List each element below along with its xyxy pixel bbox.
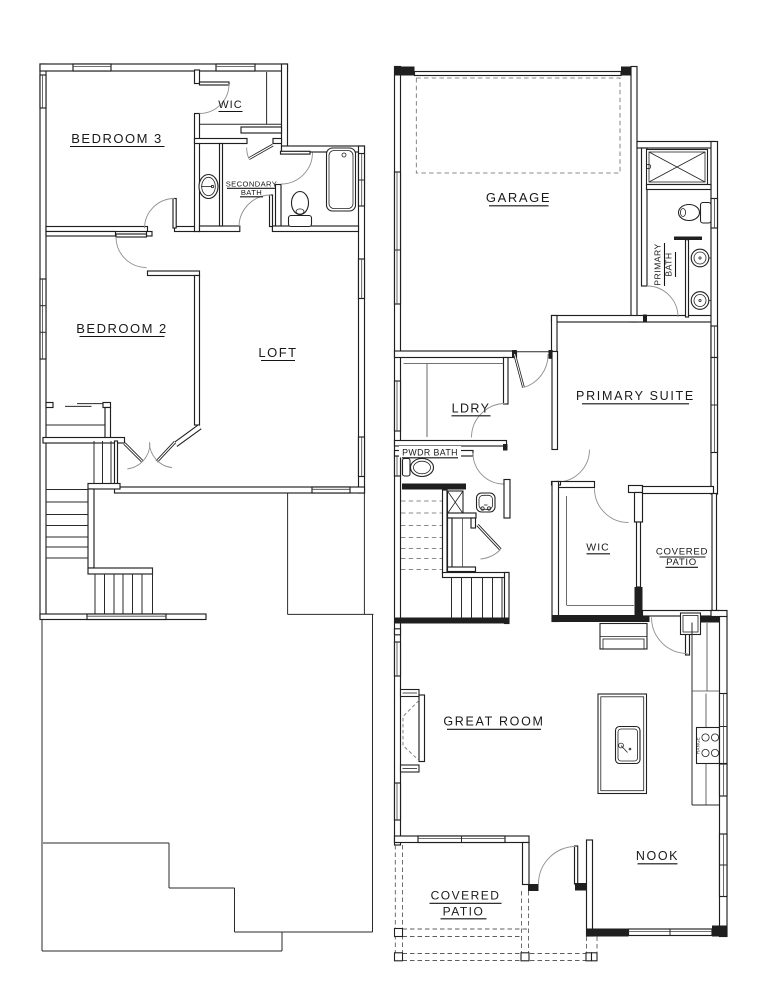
svg-text:BATH: BATH: [664, 252, 674, 276]
svg-text:NOOK: NOOK: [636, 849, 679, 863]
svg-text:WIC: WIC: [586, 542, 609, 554]
svg-text:PATIO: PATIO: [443, 905, 485, 919]
svg-text:BATH: BATH: [241, 188, 262, 197]
svg-text:PRIMARY: PRIMARY: [653, 243, 663, 286]
svg-text:LOFT: LOFT: [258, 345, 297, 360]
svg-text:BEDROOM 2: BEDROOM 2: [76, 321, 168, 336]
svg-text:GARAGE: GARAGE: [486, 190, 551, 205]
svg-text:WIC: WIC: [218, 99, 242, 111]
svg-text:COVERED: COVERED: [431, 889, 501, 903]
svg-text:PRIMARY SUITE: PRIMARY SUITE: [576, 389, 695, 403]
svg-text:GREAT ROOM: GREAT ROOM: [443, 715, 544, 729]
svg-text:BEDROOM 3: BEDROOM 3: [71, 131, 163, 146]
svg-text:LDRY: LDRY: [452, 402, 491, 416]
svg-text:PATIO: PATIO: [666, 557, 697, 568]
svg-text:RANGE: RANGE: [696, 737, 701, 754]
svg-text:PWDR BATH: PWDR BATH: [402, 448, 458, 458]
svg-text:COVERED: COVERED: [656, 547, 708, 558]
